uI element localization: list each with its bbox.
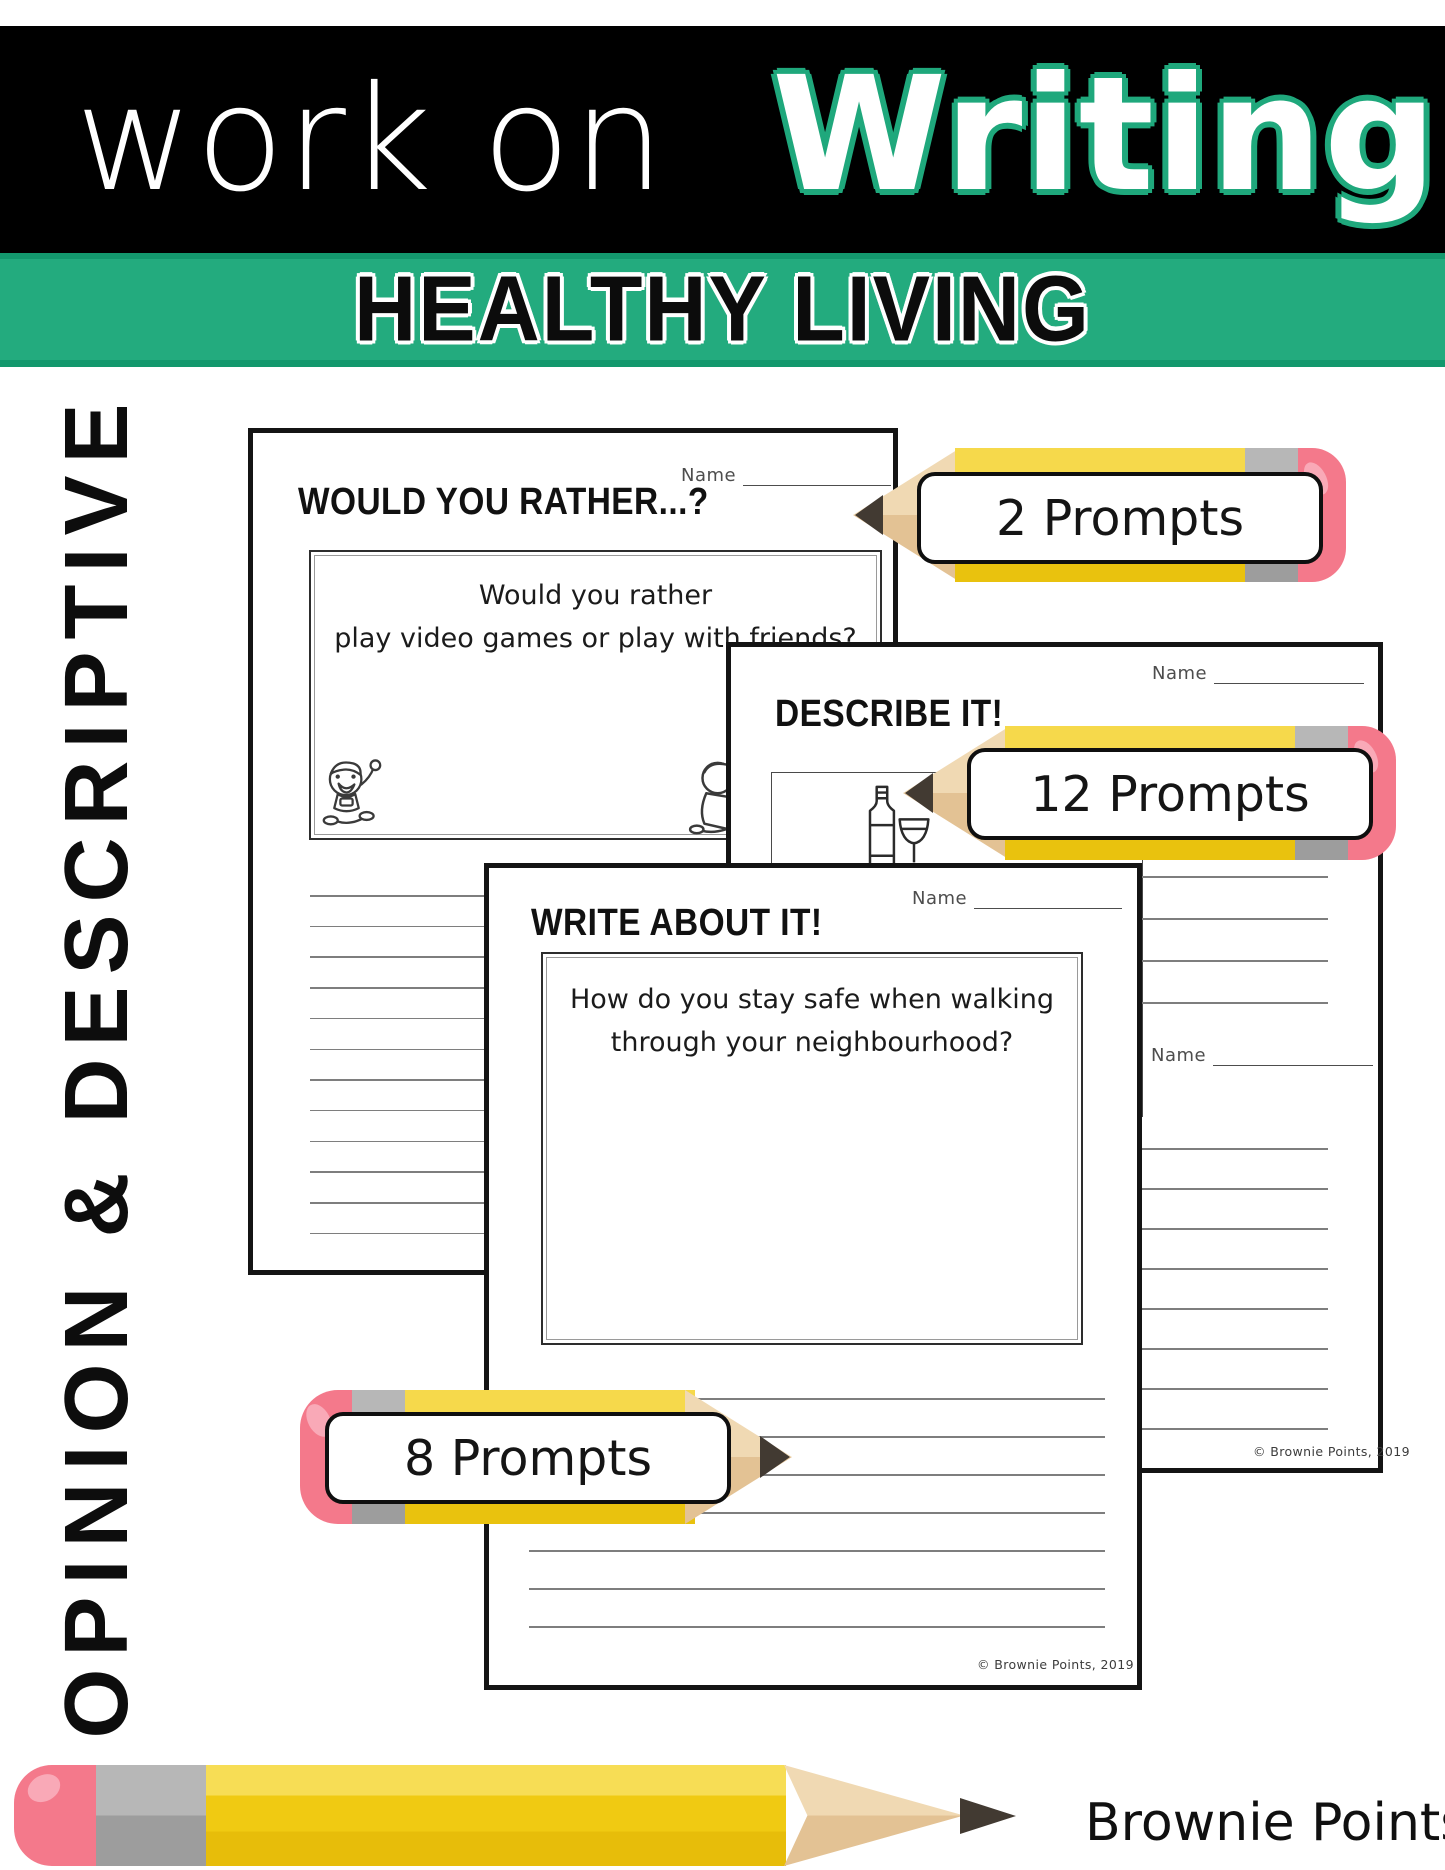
worksheet-write-about-it: Name WRITE ABOUT IT! How do you stay saf…: [484, 863, 1142, 1690]
pencil-graphite-tip-icon: [960, 1798, 1016, 1834]
writing-lines-group: [1141, 876, 1328, 1006]
subtitle-banner: HEALTHY LIVING: [0, 253, 1445, 367]
writing-line: [1141, 1428, 1328, 1430]
pencil-ferrule-icon: [96, 1765, 206, 1866]
large-pencil-icon: [14, 1765, 1018, 1866]
subtitle-text: HEALTHY LIVING: [354, 256, 1091, 363]
prompt-line-1: How do you stay safe when walking: [543, 978, 1081, 1021]
side-label-opinion-descriptive: OPINION & DESCRIPTIVE: [22, 345, 172, 1785]
writing-line: [1141, 1002, 1328, 1004]
writing-line: [1141, 1388, 1328, 1390]
name-blank-line: [1213, 1049, 1373, 1066]
name-label: Name: [912, 888, 967, 909]
writing-line: [1141, 1148, 1328, 1150]
worksheet-title: WOULD YOU RATHER...?: [298, 481, 709, 524]
name-blank-line: [974, 892, 1122, 909]
writing-line: [1141, 1308, 1328, 1310]
writing-line: [1141, 1228, 1328, 1230]
writing-line: [529, 1626, 1105, 1628]
worksheet-title: WRITE ABOUT IT!: [531, 902, 822, 945]
writing-line: [1141, 1348, 1328, 1350]
writing-line: [1141, 1188, 1328, 1190]
writing-line: [529, 1550, 1105, 1552]
name-field: Name: [1152, 663, 1364, 684]
writing-lines-group: [1141, 1148, 1328, 1438]
pencil-wood-icon: [784, 1765, 964, 1866]
writing-line: [1141, 918, 1328, 920]
name-label: Name: [1151, 1045, 1206, 1066]
copyright-text: © Brownie Points, 2019: [977, 1657, 1134, 1672]
callout-label-8-prompts: 8 Prompts: [325, 1412, 731, 1504]
callout-label-12-prompts: 12 Prompts: [967, 748, 1373, 840]
callout-label-2-prompts: 2 Prompts: [917, 472, 1323, 564]
writing-line: [1141, 1268, 1328, 1270]
pencil-graphite-tip-icon: [905, 773, 933, 813]
brand-name: Brownie Points: [1085, 1793, 1445, 1853]
pencil-callout-8-prompts: 8 Prompts: [300, 1390, 792, 1524]
header-banner: work on Writing: [0, 26, 1445, 253]
child-with-game-controller-icon: [308, 753, 406, 837]
pencil-callout-12-prompts: 12 Prompts: [900, 726, 1406, 860]
header-title-work-on: work on: [75, 34, 667, 244]
second-name-field: Name: [1151, 1045, 1373, 1066]
name-blank-line: [1214, 667, 1364, 684]
name-field: Name: [912, 888, 1122, 909]
pencil-graphite-tip-icon: [855, 495, 883, 535]
pencil-callout-2-prompts: 2 Prompts: [850, 448, 1356, 582]
writing-line: [529, 1588, 1105, 1590]
pencil-eraser-icon: [14, 1765, 96, 1866]
header-title-writing: Writing: [772, 10, 1438, 260]
copyright-text: © Brownie Points, 2019: [1253, 1444, 1410, 1459]
pencil-graphite-tip-icon: [760, 1436, 790, 1478]
prompt-box: How do you stay safe when walking throug…: [541, 952, 1083, 1345]
writing-line: [1141, 876, 1328, 878]
product-cover: work on Writing HEALTHY LIVING OPINION &…: [0, 0, 1445, 1870]
writing-line: [1141, 960, 1328, 962]
pencil-body-icon: [206, 1765, 786, 1866]
prompt-line-1: Would you rather: [311, 574, 880, 617]
prompt-line-2: through your neighbourhood?: [543, 1021, 1081, 1064]
name-label: Name: [1152, 663, 1207, 684]
